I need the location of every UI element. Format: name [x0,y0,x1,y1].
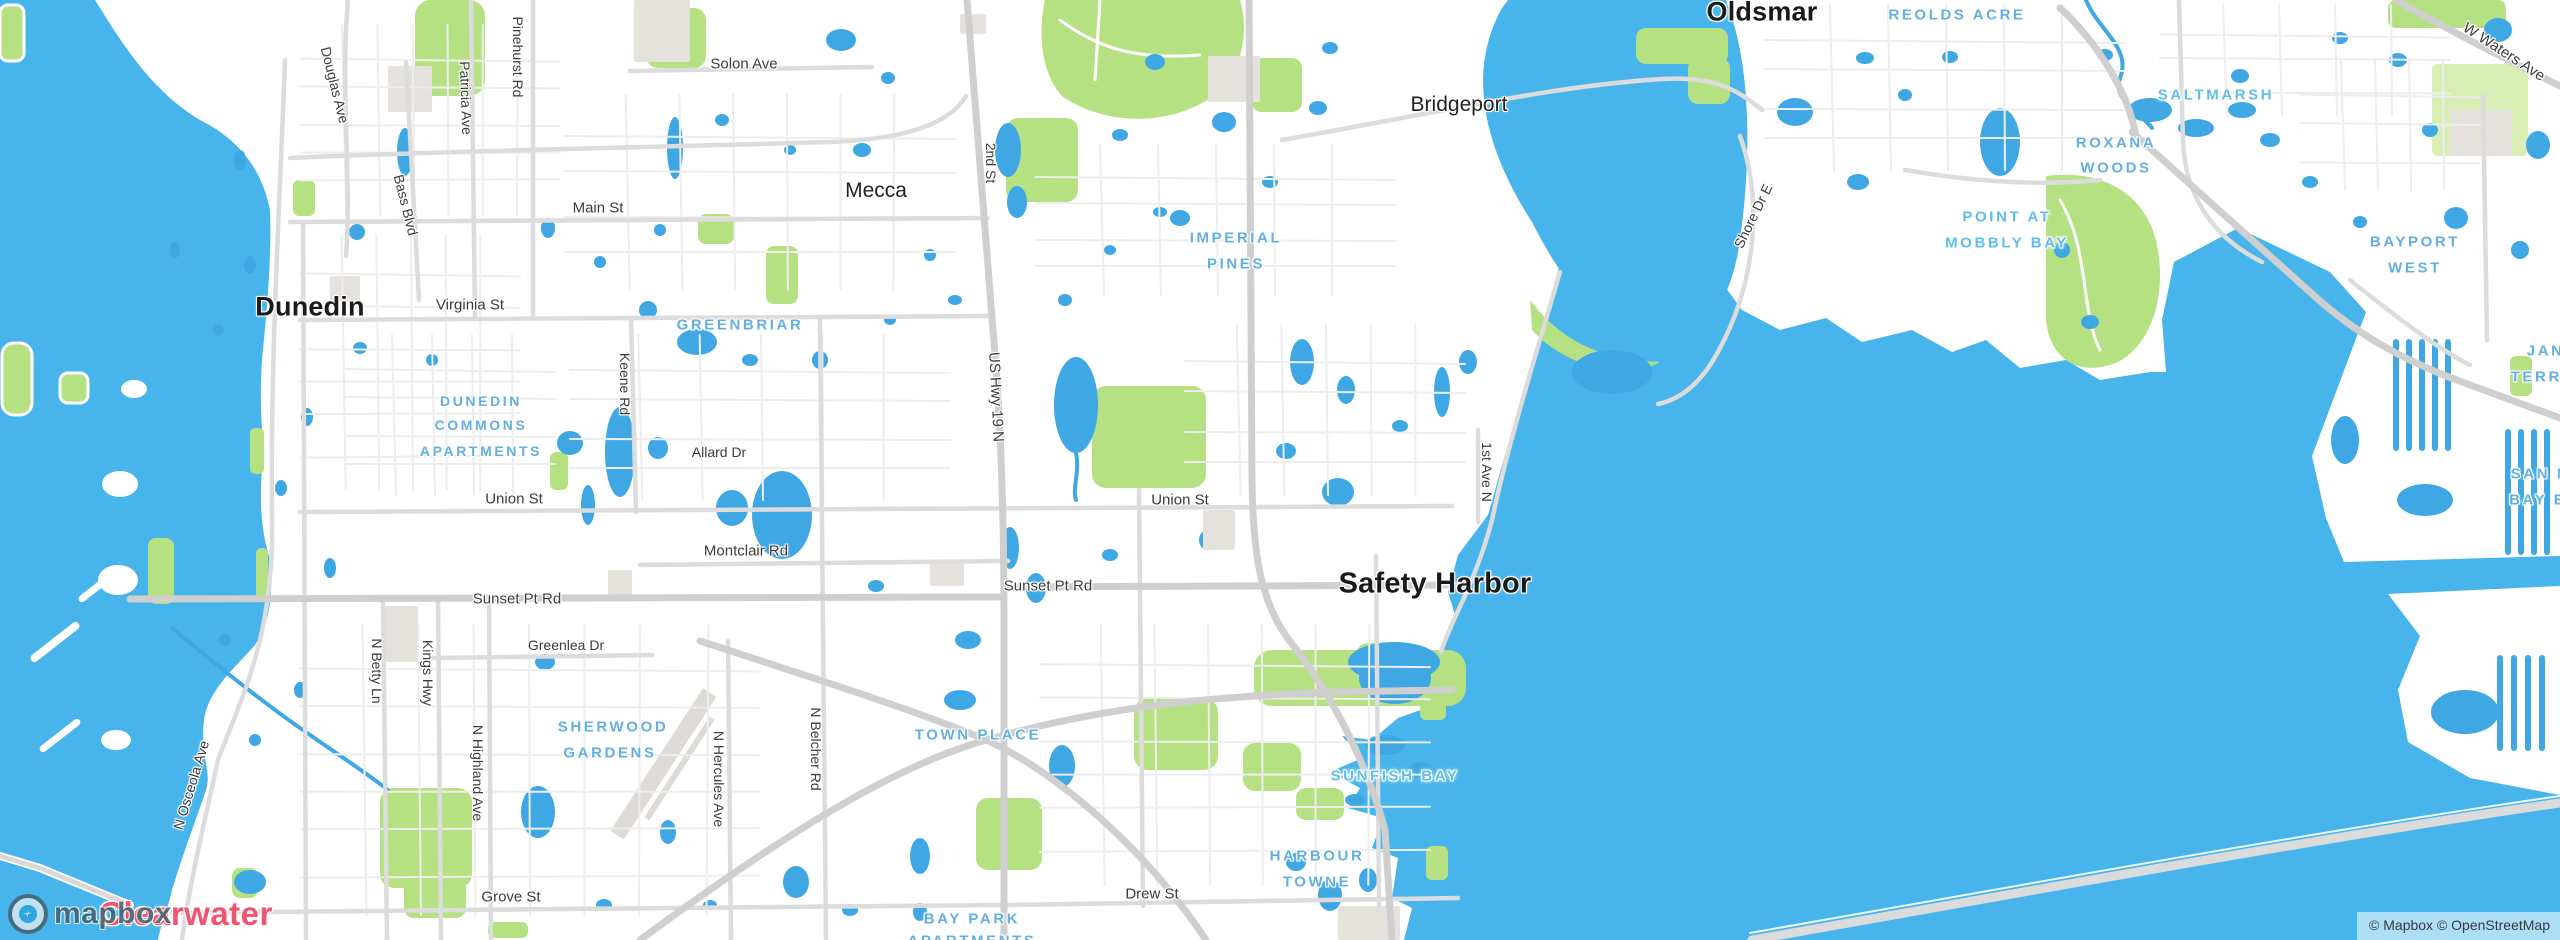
mapbox-wordmark: mapbox [54,897,172,931]
basemap-layers [0,0,2560,940]
map-canvas[interactable]: DunedinOldsmarSafety HarborClearwaterBri… [0,0,2560,940]
mapbox-logo[interactable]: mapbox [8,894,172,934]
map-attribution[interactable]: © Mapbox © OpenStreetMap [2357,912,2560,940]
mapbox-compass-icon [8,894,48,934]
